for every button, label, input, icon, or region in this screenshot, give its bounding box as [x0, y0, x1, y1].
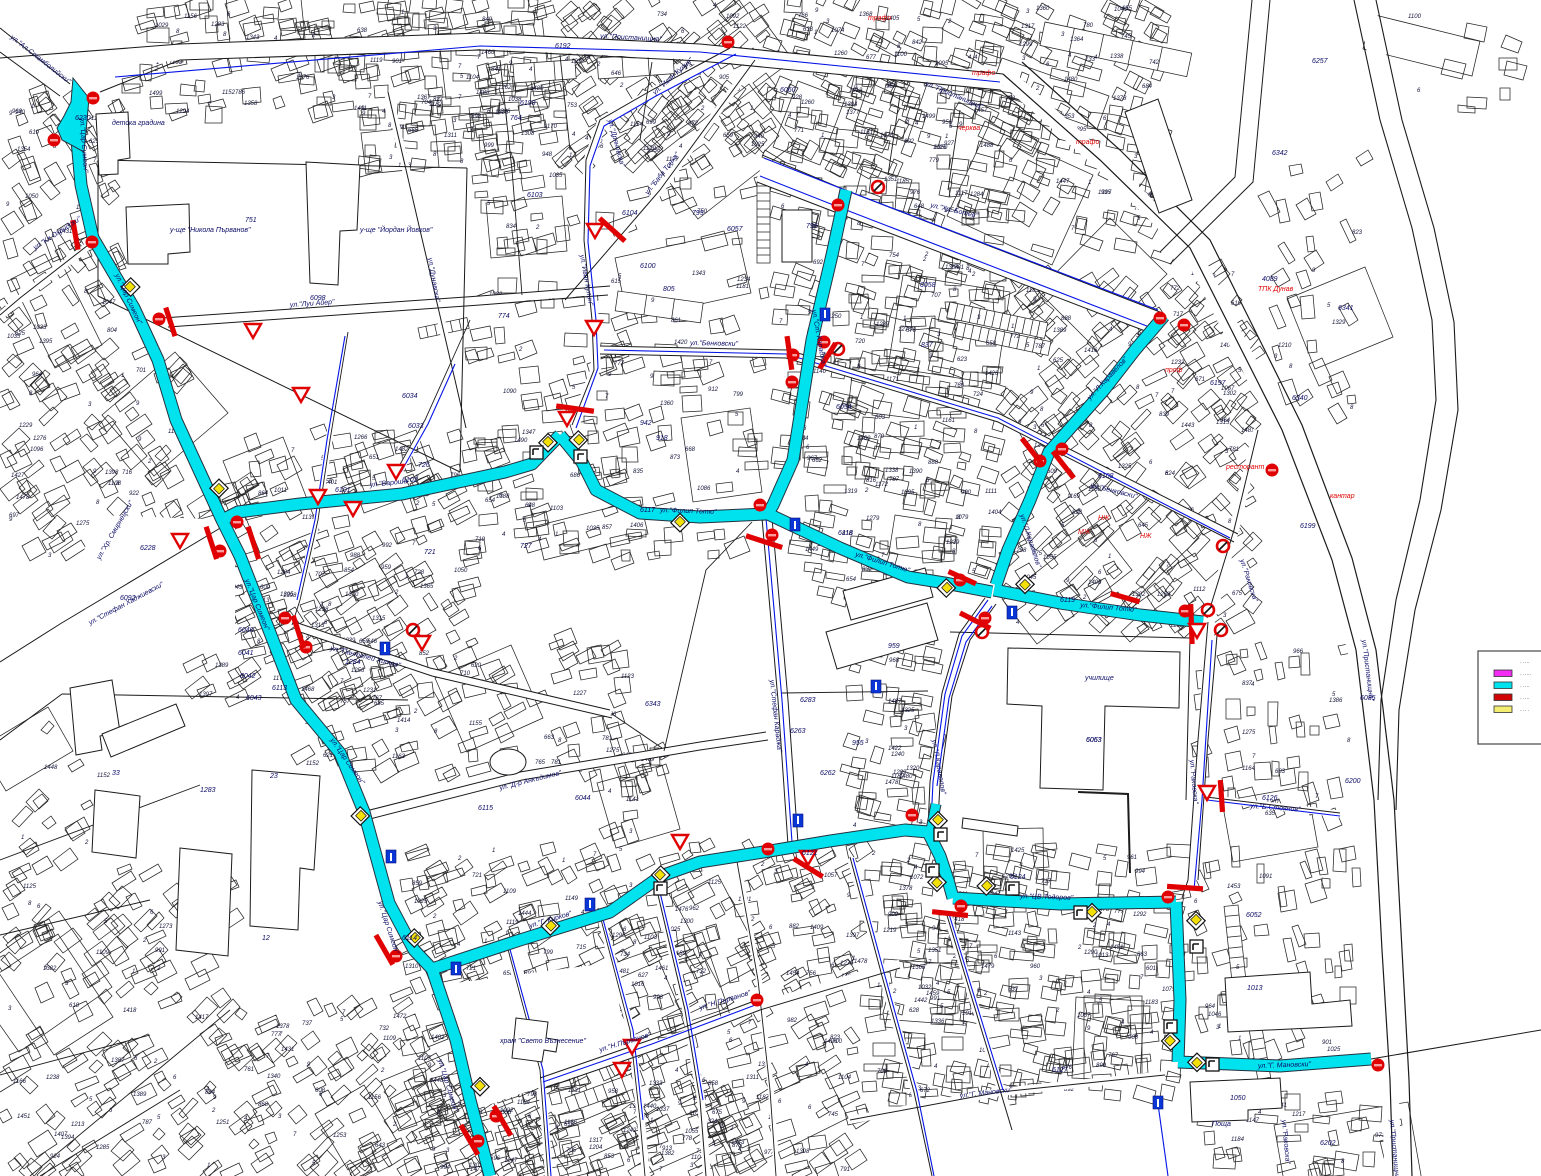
svg-text:1055: 1055 — [1043, 555, 1057, 561]
svg-text:942: 942 — [640, 420, 652, 427]
svg-text:781: 781 — [602, 736, 612, 742]
svg-text:957: 957 — [886, 84, 897, 90]
svg-text:1: 1 — [860, 315, 863, 321]
svg-text:1394: 1394 — [844, 102, 858, 108]
svg-text:692: 692 — [813, 260, 824, 266]
svg-text:1090: 1090 — [503, 389, 517, 395]
svg-text:6104: 6104 — [622, 210, 638, 217]
svg-text:1169: 1169 — [1067, 494, 1081, 500]
svg-text:724: 724 — [973, 392, 984, 398]
svg-text:940: 940 — [754, 134, 765, 140]
svg-text:1: 1 — [650, 1118, 653, 1124]
svg-text:637: 637 — [1008, 987, 1019, 993]
svg-text:1440: 1440 — [643, 1104, 657, 1110]
svg-text:1325: 1325 — [901, 708, 915, 714]
svg-text:ТПК Дунав: ТПК Дунав — [1258, 286, 1294, 293]
svg-text:1108: 1108 — [108, 481, 122, 487]
svg-text:2: 2 — [1077, 945, 1082, 951]
svg-text:870: 870 — [874, 434, 885, 440]
svg-text:1091: 1091 — [1259, 874, 1272, 880]
svg-text:1164: 1164 — [1242, 766, 1256, 772]
svg-text:2: 2 — [413, 709, 418, 715]
svg-text:1343: 1343 — [246, 35, 260, 41]
svg-text:храм "Свето Възнесение": храм "Свето Възнесение" — [499, 1038, 586, 1045]
svg-text:1310: 1310 — [405, 964, 419, 970]
svg-text:1086: 1086 — [697, 486, 711, 492]
svg-text:2: 2 — [619, 83, 624, 89]
svg-text:2: 2 — [153, 1059, 158, 1065]
svg-text:1230: 1230 — [571, 59, 585, 65]
svg-text:964: 964 — [32, 372, 43, 378]
svg-text:6041: 6041 — [238, 650, 254, 657]
svg-text:1283: 1283 — [211, 22, 225, 28]
svg-text:1011: 1011 — [274, 488, 287, 494]
svg-text:1183: 1183 — [1145, 1000, 1159, 1006]
svg-text:1472: 1472 — [393, 1014, 407, 1020]
svg-text:720: 720 — [855, 339, 866, 345]
svg-text:6197: 6197 — [1210, 380, 1227, 387]
svg-text:2: 2 — [892, 989, 897, 995]
svg-text:705: 705 — [566, 1148, 577, 1154]
svg-text:922: 922 — [129, 491, 140, 497]
svg-text:1262: 1262 — [498, 85, 512, 91]
svg-text:685: 685 — [374, 701, 385, 707]
svg-text:1347: 1347 — [522, 430, 536, 436]
svg-text:1315: 1315 — [372, 616, 386, 622]
svg-text:кантар: кантар — [1330, 493, 1355, 500]
svg-text:1: 1 — [914, 425, 917, 431]
svg-text:6117: 6117 — [640, 507, 656, 514]
svg-text:765: 765 — [535, 760, 546, 766]
svg-text:1266: 1266 — [354, 435, 368, 441]
svg-text:трафо: трафо — [972, 70, 995, 77]
svg-text:1378: 1378 — [899, 886, 913, 892]
svg-text:1414: 1414 — [397, 718, 411, 724]
svg-text:835: 835 — [633, 469, 644, 475]
svg-text:6057: 6057 — [727, 226, 744, 233]
svg-text:635: 635 — [1265, 811, 1276, 817]
svg-text:2: 2 — [432, 914, 437, 920]
svg-text:959: 959 — [381, 565, 392, 571]
svg-text:6341: 6341 — [1338, 305, 1354, 312]
svg-text:1: 1 — [492, 848, 495, 854]
svg-text:728: 728 — [414, 570, 425, 576]
svg-text:643: 643 — [375, 1143, 386, 1149]
svg-text:1478: 1478 — [885, 780, 899, 786]
svg-text:1295: 1295 — [612, 933, 626, 939]
svg-text:НЖ: НЖ — [1098, 515, 1110, 522]
svg-text:1072: 1072 — [910, 875, 924, 881]
svg-text:23: 23 — [269, 773, 278, 780]
svg-text:863: 863 — [1137, 952, 1148, 958]
svg-text:1476: 1476 — [675, 907, 689, 913]
svg-text:1279: 1279 — [866, 516, 880, 522]
svg-text:968: 968 — [889, 658, 900, 664]
svg-text:823: 823 — [1352, 230, 1363, 236]
svg-text:1290: 1290 — [1084, 950, 1098, 956]
svg-text:1247: 1247 — [504, 1158, 518, 1164]
svg-text:1: 1 — [405, 574, 408, 580]
svg-text:1449: 1449 — [805, 547, 819, 553]
svg-text:928: 928 — [792, 95, 803, 101]
svg-text:620: 620 — [471, 663, 482, 669]
svg-text:6263: 6263 — [790, 728, 806, 735]
svg-text:1: 1 — [1088, 180, 1091, 186]
svg-text:2: 2 — [380, 1068, 385, 1074]
svg-text:1074: 1074 — [831, 28, 845, 34]
svg-text:1025: 1025 — [751, 142, 765, 148]
svg-text:2: 2 — [457, 856, 462, 862]
svg-text:621: 621 — [323, 753, 333, 759]
svg-text:1365: 1365 — [420, 584, 434, 590]
svg-text:964: 964 — [1220, 418, 1231, 424]
svg-text:956: 956 — [942, 120, 953, 126]
svg-text:757: 757 — [340, 699, 351, 705]
svg-text:684: 684 — [1142, 84, 1153, 90]
svg-text:927: 927 — [944, 141, 955, 147]
svg-text:602: 602 — [904, 139, 915, 145]
svg-text:1185: 1185 — [896, 179, 910, 185]
svg-text:1033: 1033 — [33, 325, 47, 331]
svg-text:853: 853 — [604, 1154, 615, 1160]
svg-text:2: 2 — [535, 225, 540, 231]
svg-text:2: 2 — [924, 252, 929, 258]
svg-text:663: 663 — [544, 735, 555, 741]
svg-text:2: 2 — [142, 938, 147, 944]
svg-text:1376: 1376 — [296, 75, 310, 81]
svg-text:1490: 1490 — [514, 438, 528, 444]
svg-text:2: 2 — [596, 62, 601, 68]
svg-text:черква: черква — [958, 125, 980, 132]
svg-text:796: 796 — [806, 223, 818, 230]
svg-text:1448: 1448 — [44, 765, 58, 771]
svg-text:901: 901 — [392, 59, 402, 65]
svg-text:948: 948 — [542, 152, 553, 158]
svg-text:683: 683 — [1275, 769, 1286, 775]
svg-text:1425: 1425 — [1011, 848, 1025, 854]
svg-text:· ····: · ···· — [1520, 684, 1530, 690]
svg-text:1294: 1294 — [176, 109, 190, 115]
svg-text:799: 799 — [543, 950, 554, 956]
svg-text:1141: 1141 — [626, 797, 639, 803]
svg-text:1181: 1181 — [736, 284, 749, 290]
svg-text:1: 1 — [132, 969, 135, 975]
svg-text:1360: 1360 — [857, 436, 871, 442]
svg-text:777: 777 — [1114, 909, 1125, 915]
svg-text:646: 646 — [611, 71, 622, 77]
svg-text:1251: 1251 — [216, 1120, 229, 1126]
svg-text:училище: училище — [1084, 675, 1114, 682]
svg-text:804: 804 — [107, 328, 118, 334]
svg-text:6228: 6228 — [140, 545, 156, 552]
svg-text:777: 777 — [271, 1032, 282, 1038]
svg-text:6115: 6115 — [478, 805, 493, 812]
svg-text:1387: 1387 — [111, 1058, 125, 1064]
svg-text:988: 988 — [350, 553, 361, 559]
svg-text:1389: 1389 — [215, 663, 229, 669]
svg-text:6262: 6262 — [820, 770, 836, 777]
svg-text:772: 772 — [1170, 286, 1181, 292]
svg-text:1378: 1378 — [276, 1024, 290, 1030]
svg-text:2: 2 — [319, 602, 324, 608]
svg-text:774: 774 — [498, 313, 510, 320]
svg-text:6121: 6121 — [802, 850, 818, 857]
svg-text:12: 12 — [262, 935, 270, 942]
svg-text:1390: 1390 — [909, 469, 923, 475]
svg-text:1276: 1276 — [33, 436, 47, 442]
svg-text:753: 753 — [567, 103, 578, 109]
svg-text:1382: 1382 — [661, 1151, 675, 1157]
svg-text:6113: 6113 — [272, 685, 287, 692]
svg-text:651: 651 — [369, 455, 379, 461]
svg-text:839: 839 — [1159, 412, 1170, 418]
svg-text:1109: 1109 — [383, 1036, 397, 1042]
svg-text:654: 654 — [485, 498, 496, 504]
svg-text:1370: 1370 — [345, 592, 359, 598]
svg-text:2: 2 — [211, 1108, 216, 1114]
svg-text:798: 798 — [527, 1092, 538, 1098]
svg-text:1107: 1107 — [418, 1056, 432, 1062]
svg-text:1213: 1213 — [71, 1122, 85, 1128]
svg-text:1398: 1398 — [105, 470, 119, 476]
svg-text:1368: 1368 — [912, 965, 926, 971]
svg-text:654: 654 — [846, 577, 857, 583]
svg-text:1050: 1050 — [25, 194, 39, 200]
svg-text:787: 787 — [1035, 344, 1046, 350]
svg-text:2: 2 — [871, 851, 876, 857]
svg-text:1104: 1104 — [838, 1075, 852, 1081]
svg-text:6101: 6101 — [335, 487, 351, 494]
svg-text:6119: 6119 — [1060, 597, 1075, 604]
svg-text:1389: 1389 — [1053, 328, 1067, 334]
svg-text:1232: 1232 — [1171, 360, 1185, 366]
svg-text:6060: 6060 — [780, 87, 796, 94]
svg-text:1103: 1103 — [550, 506, 564, 512]
svg-text:трафо: трафо — [1076, 139, 1099, 146]
svg-text:699: 699 — [646, 120, 657, 126]
svg-text:787: 787 — [142, 1120, 153, 1126]
svg-text:959: 959 — [888, 643, 900, 650]
svg-text:1488: 1488 — [980, 143, 994, 149]
svg-text:1338: 1338 — [1110, 54, 1124, 60]
svg-text:745: 745 — [828, 1112, 839, 1118]
svg-text:6192: 6192 — [555, 43, 571, 50]
svg-text:779: 779 — [929, 158, 940, 164]
svg-text:1461: 1461 — [655, 966, 668, 972]
svg-text:1329: 1329 — [1332, 320, 1346, 326]
svg-text:6054: 6054 — [836, 404, 852, 411]
svg-text:625: 625 — [15, 331, 26, 337]
svg-text:1260: 1260 — [801, 100, 815, 106]
svg-text:· ·····: · ····· — [1520, 672, 1532, 678]
svg-text:6108: 6108 — [1098, 473, 1114, 480]
svg-text:· ····: · ···· — [1520, 660, 1530, 666]
svg-text:837: 837 — [921, 342, 934, 349]
svg-text:2: 2 — [392, 1122, 397, 1128]
svg-text:1269: 1269 — [1157, 592, 1171, 598]
svg-text:6283: 6283 — [800, 697, 816, 704]
svg-text:873: 873 — [670, 455, 681, 461]
svg-text:754: 754 — [889, 253, 900, 259]
svg-text:648: 648 — [914, 204, 925, 210]
svg-text:882: 882 — [789, 924, 800, 930]
svg-text:1: 1 — [852, 956, 855, 962]
svg-text:1397: 1397 — [846, 933, 860, 939]
svg-text:780: 780 — [1083, 23, 1094, 29]
svg-text:1035: 1035 — [549, 173, 563, 179]
svg-text:1125: 1125 — [708, 880, 722, 886]
svg-text:6044: 6044 — [575, 795, 591, 802]
svg-text:837: 837 — [1242, 681, 1253, 687]
svg-text:1: 1 — [555, 532, 558, 538]
svg-text:868: 868 — [258, 1102, 269, 1108]
svg-text:1: 1 — [505, 931, 508, 937]
svg-text:1210: 1210 — [1278, 343, 1292, 349]
svg-text:1284: 1284 — [277, 570, 291, 576]
svg-text:1360: 1360 — [1036, 6, 1050, 12]
svg-text:2: 2 — [453, 656, 458, 662]
svg-text:1443: 1443 — [1181, 423, 1195, 429]
svg-text:1: 1 — [31, 104, 34, 110]
svg-text:6343: 6343 — [645, 701, 661, 708]
svg-text:1025: 1025 — [414, 899, 428, 905]
svg-text:998: 998 — [653, 995, 664, 1001]
svg-text:625: 625 — [1053, 358, 1064, 364]
svg-text:734: 734 — [620, 952, 631, 958]
svg-text:· ·· ·: · ·· · — [1520, 708, 1530, 714]
svg-text:МЖ: МЖ — [1078, 529, 1091, 536]
svg-text:912: 912 — [708, 387, 719, 393]
svg-text:1343: 1343 — [692, 271, 706, 277]
svg-text:1: 1 — [21, 835, 24, 841]
svg-text:2: 2 — [971, 272, 976, 278]
svg-text:1275: 1275 — [606, 748, 620, 754]
svg-text:1231: 1231 — [363, 688, 376, 694]
svg-text:675: 675 — [1232, 591, 1243, 597]
svg-text:6040: 6040 — [238, 627, 254, 634]
svg-text:2: 2 — [700, 106, 705, 112]
svg-text:1320: 1320 — [906, 766, 920, 772]
svg-text:764: 764 — [510, 115, 522, 122]
svg-text:6043: 6043 — [246, 695, 262, 702]
svg-text:2: 2 — [394, 590, 399, 596]
svg-text:1256: 1256 — [351, 668, 365, 674]
svg-text:1404: 1404 — [988, 510, 1002, 516]
svg-text:6230: 6230 — [75, 115, 91, 122]
svg-text:888: 888 — [928, 460, 939, 466]
svg-text:1406: 1406 — [630, 523, 644, 529]
svg-text:1204: 1204 — [589, 1145, 603, 1151]
svg-text:2: 2 — [983, 991, 988, 997]
svg-text:761: 761 — [244, 1067, 254, 1073]
svg-text:1239: 1239 — [946, 540, 960, 546]
svg-text:1057: 1057 — [824, 873, 838, 879]
svg-text:976: 976 — [910, 190, 921, 196]
svg-text:6102: 6102 — [402, 477, 418, 484]
svg-text:842: 842 — [912, 40, 923, 46]
svg-text:1478: 1478 — [854, 959, 868, 965]
svg-text:827: 827 — [433, 97, 444, 103]
svg-text:ресторант: ресторант — [1225, 464, 1264, 471]
svg-text:1234: 1234 — [737, 277, 751, 283]
svg-text:676: 676 — [906, 328, 917, 334]
svg-text:1418: 1418 — [123, 1008, 137, 1014]
svg-text:1499: 1499 — [149, 91, 163, 97]
svg-text:1319: 1319 — [844, 489, 858, 495]
svg-text:717: 717 — [1173, 312, 1184, 318]
svg-text:1035: 1035 — [586, 526, 600, 532]
svg-text:1125: 1125 — [23, 884, 37, 890]
svg-text:1242: 1242 — [623, 1128, 637, 1134]
svg-text:2: 2 — [518, 347, 523, 353]
svg-text:1095: 1095 — [935, 61, 949, 67]
svg-text:955: 955 — [852, 740, 864, 747]
svg-text:777: 777 — [614, 361, 625, 367]
svg-text:772: 772 — [1010, 334, 1021, 340]
svg-text:6118: 6118 — [838, 530, 853, 537]
svg-text:у-ще "Йордан Йовков": у-ще "Йордан Йовков" — [359, 225, 433, 234]
svg-text:771: 771 — [794, 128, 804, 134]
svg-text:716: 716 — [122, 470, 133, 476]
svg-text:· ····: · ···· — [1520, 696, 1530, 702]
svg-text:1013: 1013 — [1247, 985, 1263, 992]
svg-text:1: 1 — [401, 10, 404, 16]
svg-text:6042: 6042 — [240, 673, 256, 680]
svg-text:1156: 1156 — [368, 1095, 382, 1101]
svg-text:1172: 1172 — [875, 482, 889, 488]
svg-text:33: 33 — [112, 770, 120, 777]
svg-text:1454: 1454 — [786, 971, 800, 977]
svg-text:707: 707 — [315, 572, 326, 578]
svg-text:781: 781 — [954, 265, 964, 271]
svg-text:619: 619 — [29, 130, 40, 136]
svg-text:1155: 1155 — [469, 721, 483, 727]
svg-text:726: 726 — [418, 462, 430, 469]
svg-text:1: 1 — [1218, 1024, 1221, 1030]
svg-text:1076: 1076 — [880, 133, 894, 139]
svg-text:6193: 6193 — [520, 100, 536, 107]
svg-text:1152: 1152 — [222, 90, 236, 96]
svg-text:1333: 1333 — [649, 1081, 663, 1087]
svg-text:857: 857 — [602, 525, 613, 531]
svg-text:672: 672 — [920, 1088, 931, 1094]
svg-text:6103: 6103 — [527, 192, 543, 199]
svg-text:1100: 1100 — [894, 52, 908, 58]
svg-text:992: 992 — [382, 543, 393, 549]
svg-text:1397: 1397 — [199, 692, 213, 698]
svg-text:972: 972 — [688, 121, 699, 127]
svg-text:781: 781 — [1229, 447, 1239, 453]
svg-text:1378: 1378 — [1113, 96, 1127, 102]
svg-text:1025: 1025 — [1327, 1047, 1341, 1053]
svg-text:767: 767 — [1108, 1053, 1119, 1059]
svg-text:1360: 1360 — [660, 401, 674, 407]
svg-text:665: 665 — [408, 128, 419, 134]
svg-text:1253: 1253 — [333, 1133, 347, 1139]
svg-text:1397: 1397 — [1098, 190, 1112, 196]
svg-text:1431: 1431 — [281, 1047, 294, 1053]
svg-text:854: 854 — [344, 568, 355, 574]
svg-text:1184: 1184 — [517, 1100, 531, 1106]
svg-text:1311: 1311 — [444, 133, 457, 139]
svg-text:824: 824 — [1165, 471, 1176, 477]
svg-text:4089: 4089 — [1262, 276, 1278, 283]
svg-text:1377: 1377 — [846, 110, 860, 116]
svg-text:1119: 1119 — [370, 58, 383, 64]
svg-text:6200: 6200 — [1345, 778, 1361, 785]
svg-text:1217: 1217 — [1292, 1112, 1306, 1118]
svg-text:1: 1 — [569, 153, 572, 159]
